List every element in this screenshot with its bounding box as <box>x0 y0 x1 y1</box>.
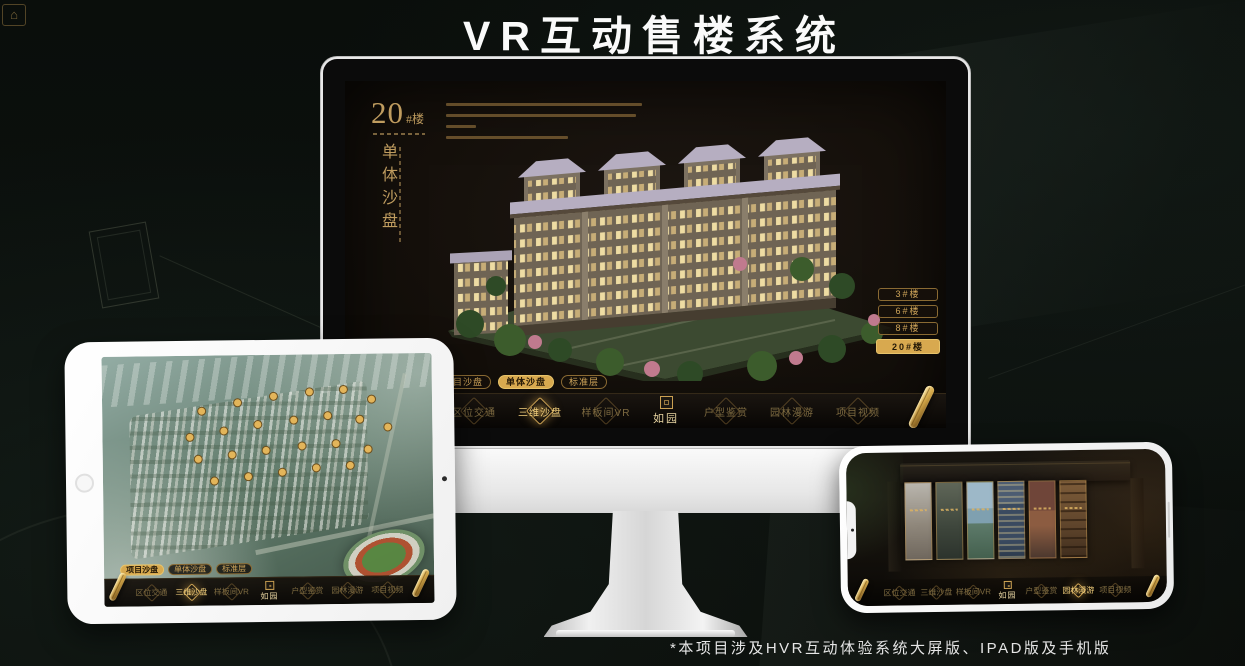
floor-button-6[interactable]: 6#楼 <box>878 305 938 318</box>
notch <box>847 501 857 559</box>
scene-panel[interactable] <box>997 481 1025 559</box>
tablet-device: 项目沙盘 单体沙盘 标准层 区位交通 三维沙盘 样板间VR <box>64 338 456 625</box>
scene-panel[interactable] <box>935 482 963 560</box>
background-plaque-frame <box>89 222 160 309</box>
nav-item-label: 园林漫游 <box>1062 584 1094 595</box>
nav-item-label: 样板间VR <box>956 586 991 597</box>
brand-logo[interactable]: 如园 <box>252 581 286 602</box>
nav-item-location-traffic[interactable]: 区位交通 <box>881 579 917 606</box>
sandtable-sub-tabs: 项目沙盘 单体沙盘 标准层 <box>120 563 252 576</box>
camera-icon <box>442 476 447 481</box>
nav-item-label: 园林漫游 <box>770 404 814 419</box>
brand-logo[interactable]: 如园 <box>992 581 1022 601</box>
page-title: VR互动售楼系统 <box>32 2 1245 62</box>
nav-item-showroom-vr[interactable]: 样板间VR <box>955 578 991 605</box>
project-footnote: *本项目涉及HVR互动体验系统大屏版、IPAD版及手机版 <box>670 637 1111 658</box>
side-button[interactable] <box>1168 502 1171 538</box>
nav-item-label: 户型鉴赏 <box>291 585 323 596</box>
floor-button-group: 3#楼 6#楼 8#楼 20#楼 <box>876 288 940 354</box>
nav-item-garden-tour[interactable]: 园林漫游 <box>1060 577 1096 604</box>
home-button[interactable] <box>75 474 94 493</box>
floor-button-3[interactable]: 3#楼 <box>878 288 938 301</box>
scroll-icon[interactable] <box>907 384 935 428</box>
description-line <box>446 114 636 117</box>
nav-item-project-video[interactable]: 项目视频 <box>825 394 891 428</box>
nav-item-label: 区位交通 <box>452 404 496 419</box>
phone-device: 区位交通 三维沙盘 样板间VR 如园 户型鉴赏 <box>839 442 1174 614</box>
building-number: 20 <box>371 95 404 130</box>
scene-panel[interactable] <box>904 482 932 560</box>
brand-logo[interactable]: 如园 <box>639 396 693 426</box>
nav-item-label: 户型鉴赏 <box>704 404 748 419</box>
monitor-stand <box>544 511 748 637</box>
nav-item-showroom-vr[interactable]: 样板间VR <box>212 578 250 605</box>
nav-item-project-video[interactable]: 项目视频 <box>1097 576 1133 603</box>
scene-panel[interactable] <box>1059 480 1087 558</box>
nav-item-floorplan[interactable]: 户型鉴赏 <box>288 577 326 604</box>
floor-button-8[interactable]: 8#楼 <box>878 322 938 335</box>
tab-standard-floor[interactable]: 标准层 <box>216 563 252 574</box>
scene-panel[interactable] <box>966 481 994 559</box>
brand-logo-text: 如园 <box>653 410 679 426</box>
nav-item-3d-sandtable[interactable]: 三维沙盘 <box>172 579 210 606</box>
description-line <box>446 125 476 128</box>
subtitle-english-decor <box>399 147 401 243</box>
building-number-badges[interactable] <box>101 357 108 364</box>
nav-item-label: 样板间VR <box>214 586 249 597</box>
main-nav-bar: 区位交通 三维沙盘 样板间VR 如园 户型鉴赏 <box>848 576 1167 606</box>
scene-panel[interactable] <box>1028 480 1056 558</box>
nav-item-garden-tour[interactable]: 园林漫游 <box>759 394 825 428</box>
seal-icon <box>660 396 673 409</box>
nav-item-label: 园林漫游 <box>331 585 363 596</box>
nav-item-label: 项目视频 <box>836 404 880 419</box>
title-english-decor <box>373 133 425 135</box>
nav-item-3d-sandtable[interactable]: 三维沙盘 <box>918 579 954 606</box>
floor-button-20[interactable]: 20#楼 <box>876 339 940 354</box>
building-number-suffix: #楼 <box>406 112 424 126</box>
nav-item-label: 样板间VR <box>582 404 631 419</box>
nav-item-garden-tour[interactable]: 园林漫游 <box>328 577 366 604</box>
seal-icon <box>1003 581 1011 589</box>
tab-standard-floor[interactable]: 标准层 <box>561 375 607 389</box>
corner-logo: ⌂ <box>2 4 26 26</box>
promo-collage: ⌂ VR互动售楼系统 20#楼 单体沙盘 <box>0 0 1245 666</box>
nav-item-label: 项目视频 <box>371 584 403 595</box>
background-map-road <box>988 282 1245 379</box>
building-subtitle-vertical: 单体沙盘 <box>375 143 399 235</box>
sandtable-sub-tabs: 项目沙盘 单体沙盘 标准层 <box>435 375 607 389</box>
nav-item-project-video[interactable]: 项目视频 <box>368 576 406 603</box>
nav-item-label: 三维沙盘 <box>175 587 207 598</box>
nav-item-showroom-vr[interactable]: 样板间VR <box>573 394 639 428</box>
nav-item-label: 三维沙盘 <box>920 586 952 597</box>
nav-item-3d-sandtable[interactable]: 三维沙盘 <box>507 394 573 428</box>
seal-icon <box>265 581 274 590</box>
nav-item-label: 区位交通 <box>135 587 167 598</box>
nav-item-floorplan[interactable]: 户型鉴赏 <box>693 394 759 428</box>
main-nav-bar: 区位交通 三维沙盘 样板间VR 如园 户型鉴赏 <box>104 575 434 607</box>
nav-item-floorplan[interactable]: 户型鉴赏 <box>1023 577 1059 604</box>
scene-gallery <box>904 480 1087 561</box>
brand-logo-text: 如园 <box>260 591 278 602</box>
nav-item-label: 三维沙盘 <box>518 404 562 419</box>
tab-single-sandtable[interactable]: 单体沙盘 <box>168 564 212 576</box>
nav-item-label: 区位交通 <box>883 587 915 598</box>
building-model-3d[interactable] <box>440 136 900 381</box>
description-line <box>446 103 642 106</box>
nav-item-label: 户型鉴赏 <box>1025 585 1057 596</box>
nav-item-location-traffic[interactable]: 区位交通 <box>132 579 170 606</box>
nav-item-label: 项目视频 <box>1099 584 1131 595</box>
tab-project-sandtable[interactable]: 项目沙盘 <box>120 564 164 576</box>
road <box>367 373 407 540</box>
brand-logo-text: 如园 <box>998 590 1016 601</box>
aerial-masterplan-view[interactable]: 项目沙盘 单体沙盘 标准层 区位交通 三维沙盘 样板间VR <box>101 353 434 607</box>
tab-single-sandtable[interactable]: 单体沙盘 <box>498 375 554 389</box>
building-title: 20#楼 <box>371 95 424 131</box>
phone-screen: 区位交通 三维沙盘 样板间VR 如园 户型鉴赏 <box>846 449 1167 606</box>
